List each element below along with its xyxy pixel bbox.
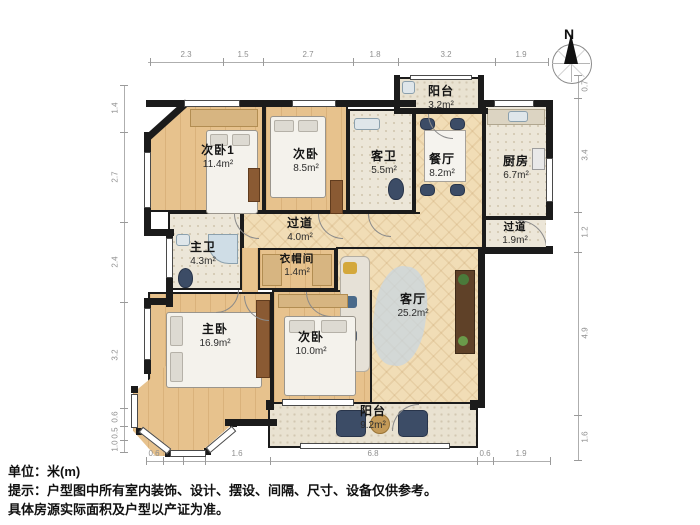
room-label-living: 客厅25.2m² — [397, 290, 428, 319]
wall — [478, 247, 485, 408]
dimension-label: 4.9 — [581, 327, 590, 338]
window — [282, 399, 354, 406]
dimension-label: 1.4 — [111, 102, 120, 113]
window — [410, 75, 472, 80]
dim-tick — [163, 457, 164, 465]
dim-tick — [120, 222, 128, 223]
dimension-label: 1.9 — [515, 449, 526, 458]
dim-tick — [120, 440, 128, 441]
room-label-kitchen: 厨房6.7m² — [503, 152, 529, 181]
wall — [480, 247, 553, 254]
dimension-label: 0.6 — [479, 449, 490, 458]
room-label-master-bedroom: 主卧16.9m² — [199, 320, 230, 349]
dining-chair — [450, 184, 465, 196]
room-label-closet: 衣帽间1.4m² — [280, 251, 315, 278]
room-label-dining: 餐厅8.2m² — [429, 150, 455, 179]
dimension-label: 1.2 — [581, 226, 590, 237]
dim-tick — [120, 302, 128, 303]
room-label-guest-bath: 客卫5.5m² — [371, 147, 397, 176]
bed-pillow — [274, 120, 294, 132]
dining-chair — [420, 184, 435, 196]
dim-tick — [493, 457, 494, 465]
bay-window-strip — [131, 394, 138, 428]
dim-tick — [574, 212, 582, 213]
dim-tick — [574, 252, 582, 253]
room-label-hallway: 过道4.0m² — [287, 214, 313, 243]
balcony-pier — [266, 400, 274, 410]
dim-line-left — [124, 85, 125, 452]
window — [144, 152, 151, 208]
dimension-label: 1.6 — [231, 449, 242, 458]
dim-tick — [223, 58, 224, 66]
dim-tick — [263, 58, 264, 66]
closet-shelf — [312, 254, 332, 286]
room-label-balcony-top: 阳台3.2m² — [428, 82, 454, 111]
dimension-label: 1.5 — [237, 50, 248, 59]
dimension-label: 1.9 — [515, 50, 526, 59]
toilet — [388, 178, 404, 200]
dim-line-right — [578, 75, 579, 460]
dimension-label: 3.2 — [111, 349, 120, 360]
sink — [354, 118, 380, 130]
dim-tick — [146, 457, 147, 465]
wall — [262, 100, 416, 107]
disclaimer-line1: 提示：户型图中所有室内装饰、设计、摆设、间隔、尺寸、设备仅供参考。 — [8, 480, 437, 499]
fridge — [532, 148, 545, 170]
dim-tick — [353, 58, 354, 66]
dim-tick — [183, 457, 184, 465]
window — [546, 158, 553, 202]
bay-window-strip — [170, 450, 206, 457]
bed-pillow — [298, 120, 318, 132]
window — [166, 238, 173, 278]
room-label-bedroom3: 次卧10.0m² — [295, 328, 326, 357]
toilet — [178, 268, 193, 288]
room-hall-to-master — [242, 248, 258, 296]
window — [494, 100, 534, 107]
dimension-label: 0.6 — [148, 449, 159, 458]
dim-tick — [398, 58, 399, 66]
dim-tick — [120, 408, 128, 409]
dim-tick — [120, 132, 128, 133]
dim-tick — [150, 58, 151, 66]
room-label-entry-corridor: 过道1.9m² — [502, 219, 528, 246]
sofa-pillow — [343, 262, 357, 274]
sink — [176, 234, 190, 246]
dim-tick — [550, 457, 551, 465]
dimension-label: 2.7 — [111, 171, 120, 182]
dimension-label: 6.8 — [367, 449, 378, 458]
unit-note: 单位：米(m) — [8, 461, 80, 480]
dimension-label: 1.0 — [111, 440, 120, 451]
north-compass: N — [548, 26, 594, 100]
bed-pillow — [170, 352, 183, 382]
dim-tick — [120, 85, 128, 86]
kitchen-sink — [508, 111, 528, 122]
bay-pier — [131, 386, 138, 393]
room-label-bedroom2: 次卧8.5m² — [293, 145, 319, 174]
nightstand — [248, 168, 260, 202]
dim-line-bottom — [146, 461, 550, 462]
room-label-bedroom1: 次卧111.4m² — [201, 141, 235, 170]
room-label-master-bath: 主卫4.3m² — [190, 238, 216, 267]
floorplan-canvas: 次卧111.4m² 次卧8.5m² 客卫5.5m² 餐厅8.2m² 厨房6.7m… — [0, 0, 700, 525]
dim-tick — [205, 457, 206, 465]
plant — [458, 336, 468, 346]
dim-tick — [477, 457, 478, 465]
entry-door-gap — [546, 220, 553, 246]
north-needle-icon — [564, 34, 578, 64]
dim-tick — [574, 460, 582, 461]
disclaimer-line2: 具体房源实际面积及户型以产证为准。 — [8, 499, 229, 518]
dimension-label: 0.6 — [111, 411, 120, 422]
balcony-pier — [478, 75, 484, 114]
dim-tick — [270, 457, 271, 465]
dimension-label: 0.5 — [111, 427, 120, 438]
dimension-label: 2.3 — [180, 50, 191, 59]
dimension-label: 2.7 — [302, 50, 313, 59]
plant — [458, 274, 469, 285]
dim-tick — [495, 58, 496, 66]
wardrobe — [190, 109, 258, 127]
window — [292, 100, 336, 107]
dimension-label: 3.4 — [581, 149, 590, 160]
washing-machine — [402, 81, 415, 94]
window — [300, 443, 450, 449]
balcony-pier — [470, 400, 478, 410]
balcony-pier — [394, 75, 400, 114]
dim-tick — [574, 415, 582, 416]
dim-tick — [120, 452, 128, 453]
window — [144, 308, 151, 360]
dresser — [330, 180, 343, 214]
room-label-balcony-bottom: 阳台9.2m² — [360, 402, 386, 431]
dim-tick — [120, 426, 128, 427]
dimension-label: 3.2 — [440, 50, 451, 59]
dimension-label: 1.6 — [581, 431, 590, 442]
window — [184, 100, 240, 107]
dimension-label: 2.4 — [111, 256, 120, 267]
bed-pillow — [170, 316, 183, 346]
dim-line-top — [148, 62, 548, 63]
dimension-label: 1.8 — [369, 50, 380, 59]
